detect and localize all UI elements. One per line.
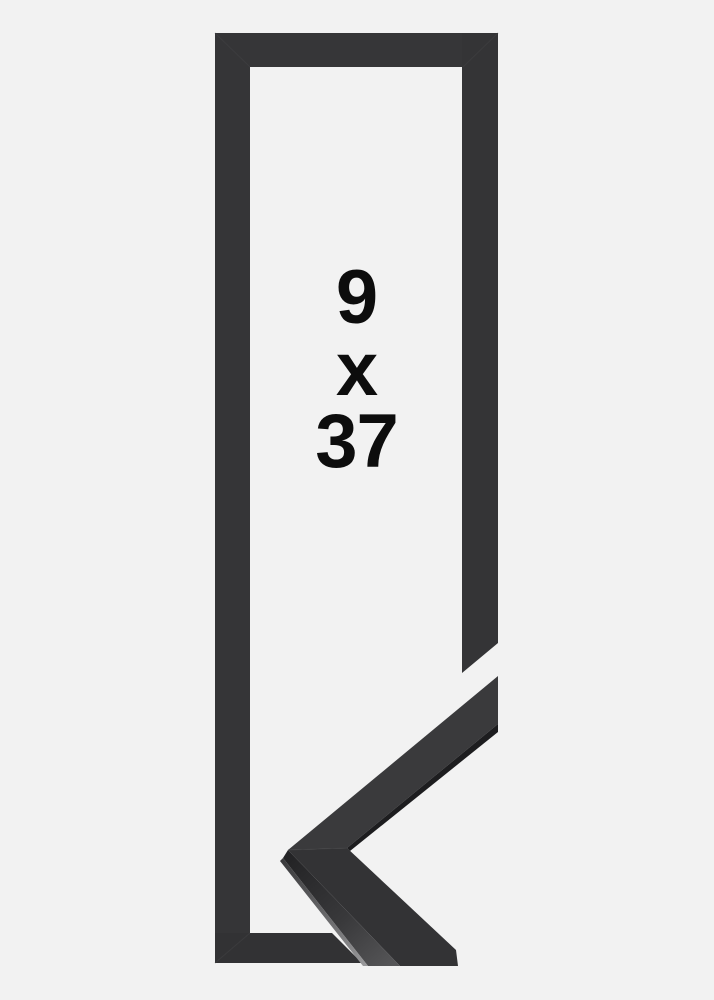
size-separator: x	[336, 334, 377, 406]
frame-top-bar	[215, 33, 498, 67]
product-image: 9 x 37	[0, 0, 714, 1000]
background	[0, 0, 714, 1000]
frame-left-bar	[215, 33, 250, 963]
size-height-value: 37	[315, 406, 398, 478]
size-label: 9 x 37	[215, 262, 498, 478]
size-width-value: 9	[336, 262, 377, 334]
